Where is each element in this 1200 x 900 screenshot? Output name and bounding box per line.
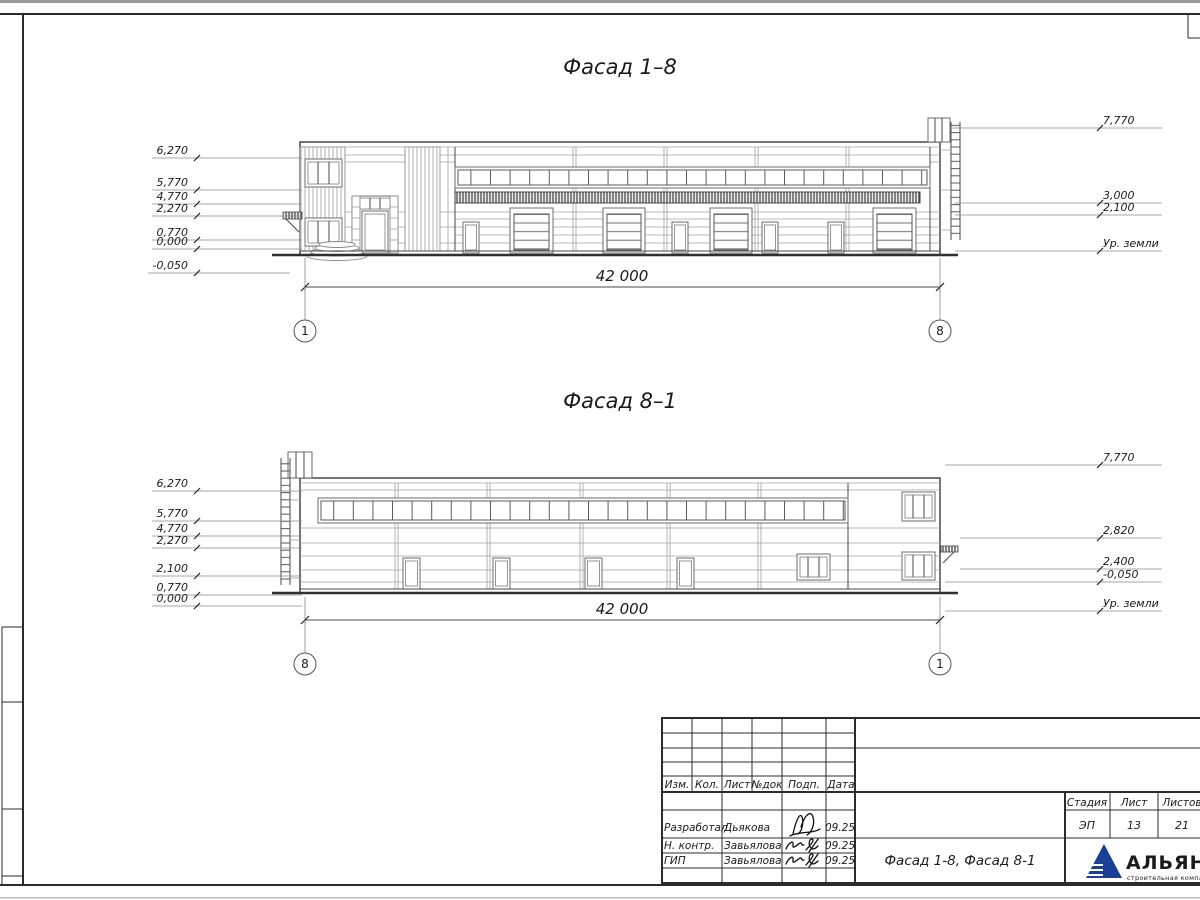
facade-1-8-drawing — [272, 118, 960, 261]
company-tagline: строительная компания — [1127, 874, 1200, 882]
door — [672, 222, 688, 253]
left-canopy — [283, 212, 302, 232]
logo-triangle-icon — [1086, 844, 1122, 878]
svg-text:Дьякова: Дьякова — [723, 822, 770, 834]
svg-text:1: 1 — [936, 657, 944, 671]
title-block: Изм. Кол. Лист №док Подп. Дата Разработа… — [662, 718, 1200, 883]
elevation-mark: 5,770 — [157, 176, 189, 189]
grid-axis-circle: 8 — [929, 320, 951, 342]
elevation-mark: 0,000 — [157, 592, 189, 605]
svg-text:Завьялова: Завьялова — [724, 840, 782, 852]
company-logo: АЛЬЯНС строительная компания — [1086, 844, 1200, 882]
tb-header-sheet: Лист — [1120, 797, 1148, 809]
elevation-mark: 5,770 — [157, 507, 189, 520]
tb-sheet-value: 13 — [1127, 819, 1141, 832]
tb-stage-value: ЭП — [1078, 819, 1095, 832]
gate — [510, 208, 553, 253]
entrance-portal — [352, 196, 398, 253]
tb-row-norm-control: Н. контр. Завьялова 09.25 — [664, 839, 855, 852]
grid-axis-circle: 1 — [929, 653, 951, 675]
tb-doc-title: Фасад 1-8, Фасад 8-1 — [884, 853, 1035, 869]
door — [403, 558, 420, 589]
svg-text:Н. контр.: Н. контр. — [664, 840, 714, 852]
door — [493, 558, 510, 589]
ground-level-label: Ур. земли — [1103, 237, 1159, 250]
tb-header-podp: Подп. — [788, 779, 820, 791]
elevation-marks-left-8-1: 6,270 5,770 4,770 2,270 2,100 0,770 0,00… — [152, 477, 302, 609]
window-band — [318, 498, 848, 523]
dimension-1-8: 42 000 1 8 — [294, 258, 951, 342]
rooftop-unit — [288, 452, 312, 478]
grid-axis-circle: 1 — [294, 320, 316, 342]
elevation-marks-right-1-8: 7,770 3,000 2,100 Ур. земли — [950, 114, 1162, 254]
svg-text:Завьялова: Завьялова — [724, 855, 782, 867]
tb-header-ndok: №док — [751, 779, 784, 791]
tb-row-developer: Разработал Дьякова 09.25 — [664, 814, 855, 836]
tb-sheets-value: 21 — [1175, 819, 1189, 832]
signature — [786, 839, 818, 852]
tb-header-data: Дата — [826, 779, 854, 791]
dimension-text: 42 000 — [596, 600, 649, 618]
dimension-8-1: 42 000 8 1 — [294, 597, 951, 675]
elevation-mark: 2,400 — [1103, 555, 1135, 568]
door — [585, 558, 602, 589]
elevation-mark: 6,270 — [157, 477, 189, 490]
sheet-frame — [0, 2, 1200, 898]
svg-text:09.25: 09.25 — [825, 855, 855, 867]
left-window-upper — [305, 159, 342, 187]
tb-header-sheets: Листов — [1161, 797, 1200, 809]
signature — [786, 854, 818, 867]
elevation-mark: -0,050 — [1103, 568, 1138, 581]
svg-text:1: 1 — [301, 324, 309, 338]
gate — [603, 208, 645, 253]
facade-8-1-title: Фасад 8–1 — [563, 389, 677, 413]
tb-header-stage: Стадия — [1067, 797, 1107, 809]
svg-text:09.25: 09.25 — [825, 822, 855, 834]
rooftop-unit — [928, 118, 950, 142]
svg-text:8: 8 — [936, 324, 944, 338]
tb-header-izm: Изм. — [665, 779, 690, 791]
elevation-mark: 2,820 — [1103, 524, 1135, 537]
elevation-mark: 7,770 — [1103, 451, 1135, 464]
elevation-mark: 2,100 — [157, 562, 189, 575]
door — [677, 558, 694, 589]
company-name: АЛЬЯНС — [1126, 852, 1200, 874]
elevation-mark: 2,100 — [1103, 201, 1135, 214]
signature — [790, 814, 820, 836]
elevation-mark: 6,270 — [157, 144, 189, 157]
svg-text:Разработал: Разработал — [664, 822, 728, 834]
elevation-mark: 0,000 — [157, 235, 189, 248]
drawing-sheet: Фасад 1–8 — [0, 0, 1200, 900]
door — [463, 222, 479, 253]
tb-row-chief-engineer: ГИП Завьялова 09.25 — [664, 854, 855, 867]
svg-text:09.25: 09.25 — [825, 840, 855, 852]
louvre-band — [455, 192, 920, 203]
window — [902, 492, 935, 521]
door — [762, 222, 778, 253]
elevation-mark: 2,270 — [157, 534, 189, 547]
elevation-marks-right-8-1: 7,770 2,820 2,400 -0,050 Ур. земли — [945, 451, 1162, 614]
ground-level-label: Ур. земли — [1103, 597, 1159, 610]
window — [902, 552, 935, 580]
right-canopy — [941, 546, 958, 563]
facade-8-1-drawing — [272, 452, 958, 593]
left-margin-cells — [2, 627, 23, 885]
tb-header-kol: Кол. — [695, 779, 719, 791]
elevation-mark: -0,050 — [153, 259, 188, 272]
tb-header-list: Лист — [723, 779, 751, 791]
gate — [873, 208, 916, 253]
grid-axis-circle: 8 — [294, 653, 316, 675]
svg-text:ГИП: ГИП — [664, 855, 686, 867]
gate — [710, 208, 752, 253]
svg-text:8: 8 — [301, 657, 309, 671]
dimension-text: 42 000 — [596, 267, 649, 285]
window-band — [455, 167, 930, 188]
facade-1-8-title: Фасад 1–8 — [563, 55, 677, 79]
elevation-mark: 2,270 — [157, 202, 189, 215]
elevation-mark: 7,770 — [1103, 114, 1135, 127]
window — [797, 554, 830, 580]
door — [828, 222, 844, 253]
